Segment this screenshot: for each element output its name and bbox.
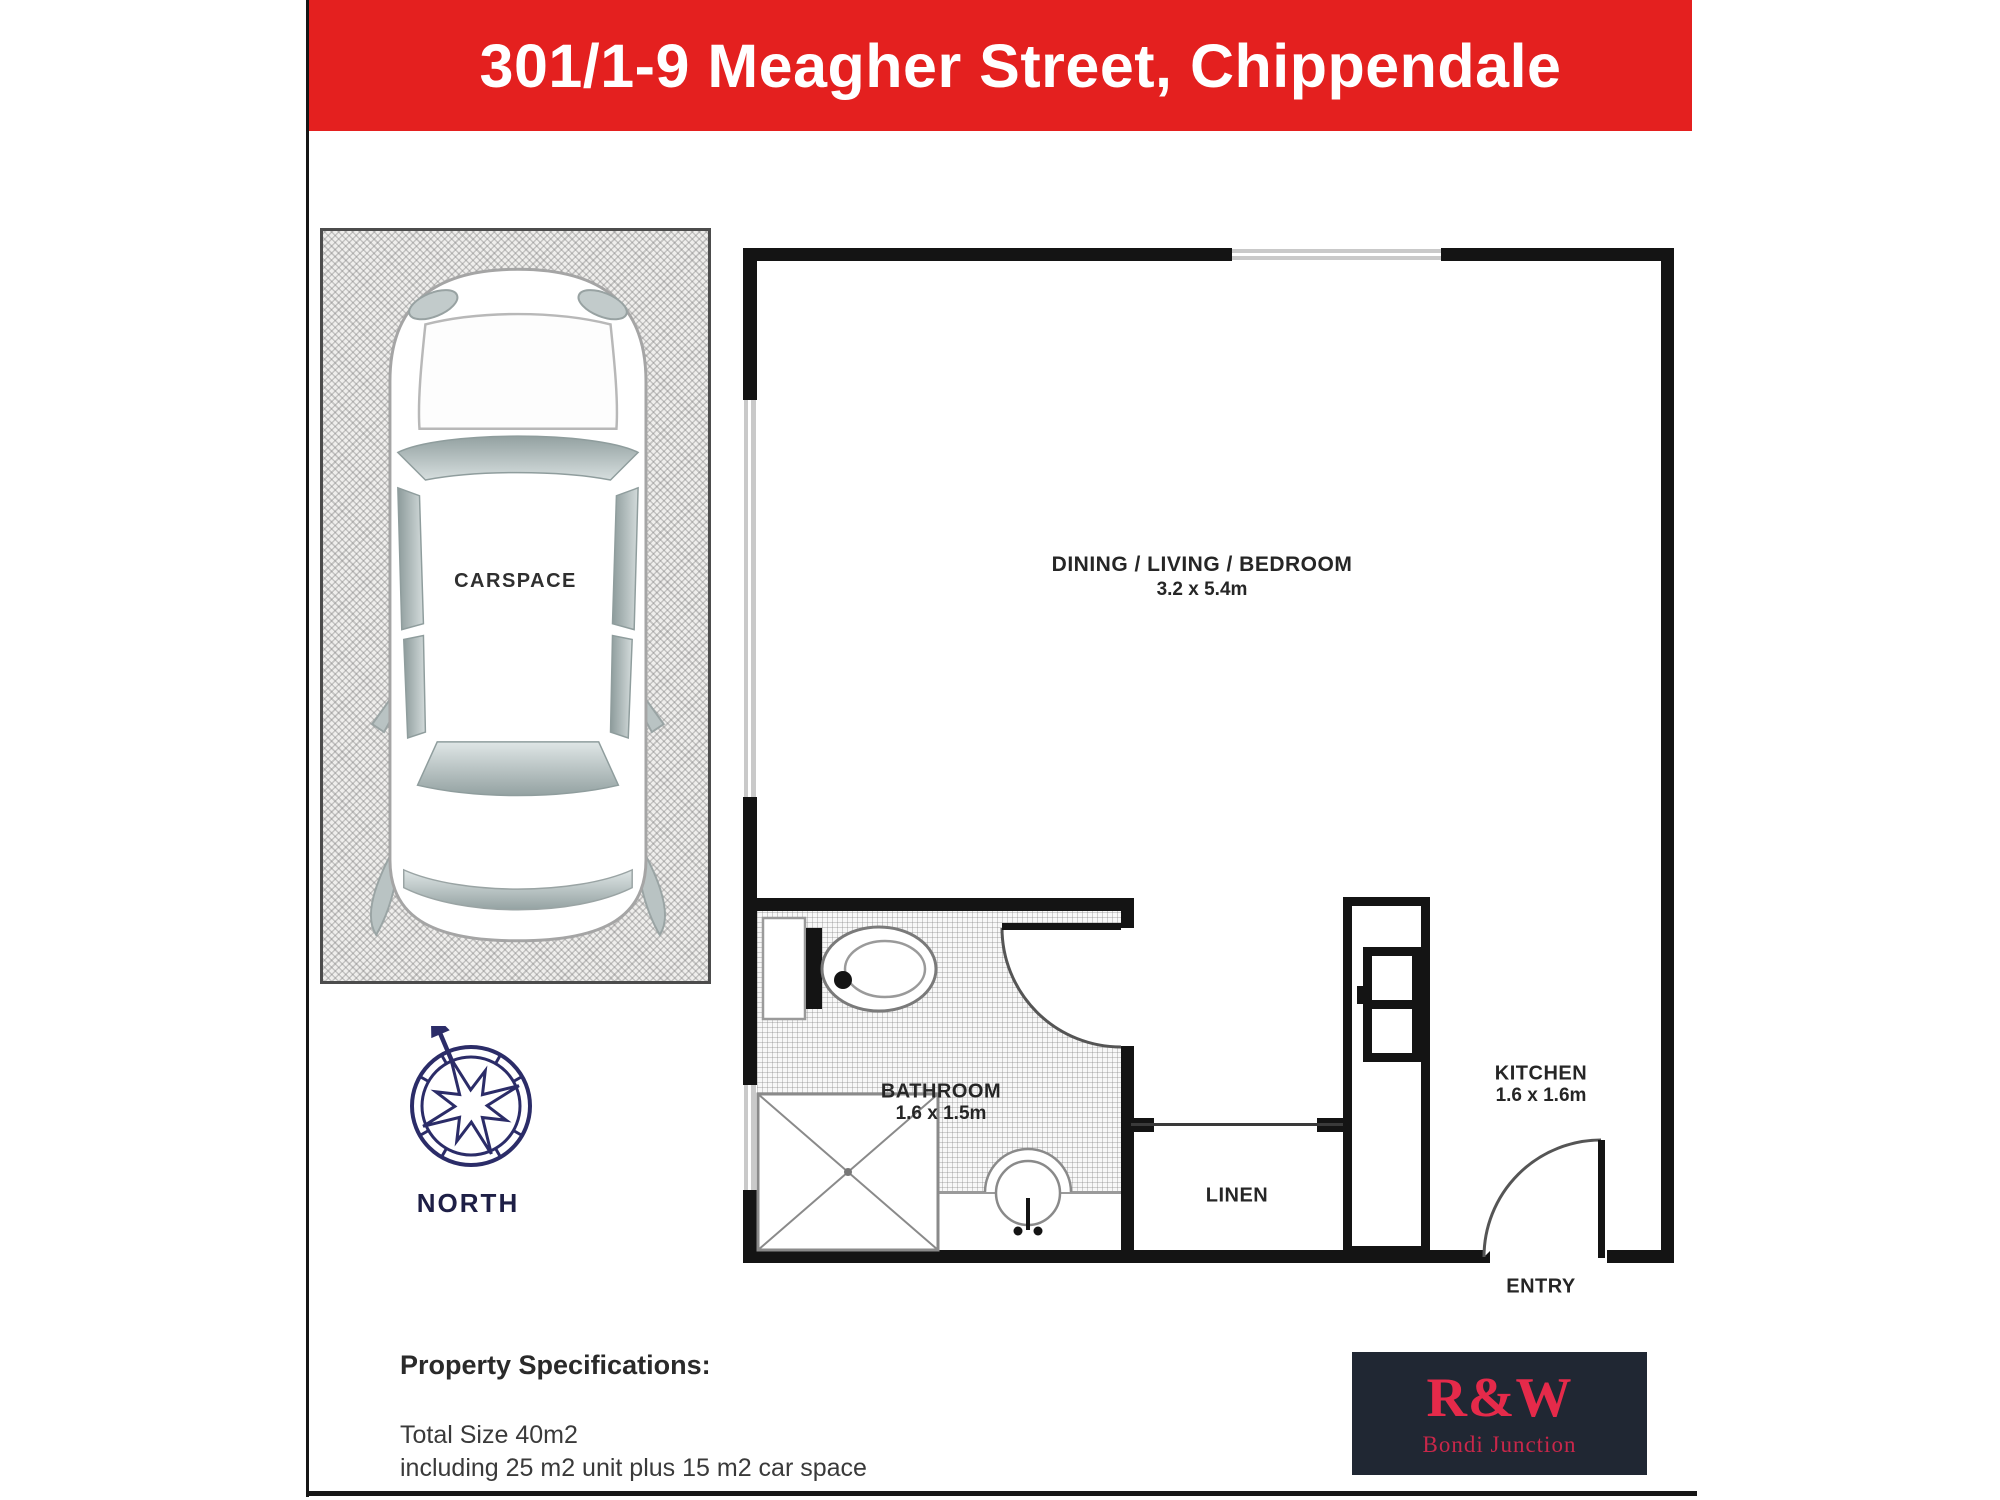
specs-heading: Property Specifications:	[400, 1350, 867, 1381]
windows	[744, 249, 1441, 1190]
specs-including: including 25 m2 unit plus 15 m2 car spac…	[400, 1452, 867, 1485]
wall-left-mid	[743, 797, 757, 898]
specs-total-size: Total Size 40m2	[400, 1419, 867, 1452]
appliance-hinge	[1357, 986, 1364, 1004]
label-linen: LINEN	[1206, 1185, 1269, 1208]
wall-right	[1661, 248, 1674, 1263]
logo-office: Bondi Junction	[1423, 1432, 1577, 1458]
wall-bathroom-right-stub	[1121, 898, 1134, 928]
logo-brand: R&W	[1426, 1370, 1572, 1426]
wall-bathroom-right	[1121, 1046, 1134, 1263]
entry-door	[1484, 1140, 1605, 1258]
entry-door-leaf	[1598, 1140, 1605, 1258]
agency-logo: R&W Bondi Junction	[1352, 1352, 1647, 1475]
floorplan-page: 301/1-9 Meagher Street, Chippendale	[0, 0, 2000, 1500]
toilet-flush-button	[834, 971, 852, 989]
label-kitchen-dims: 1.6 x 1.6m	[1496, 1085, 1587, 1107]
property-specifications: Property Specifications: Total Size 40m2…	[400, 1350, 867, 1485]
label-bathroom-dims: 1.6 x 1.5m	[896, 1103, 987, 1125]
bathroom-door	[1002, 923, 1121, 1047]
wall-top-left	[743, 248, 1232, 261]
wall-bathroom-top	[743, 898, 1134, 911]
label-living-dims: 3.2 x 5.4m	[1157, 579, 1248, 601]
kitchen-partition	[1343, 897, 1430, 1257]
label-kitchen-name: KITCHEN	[1495, 1063, 1587, 1086]
wall-left-lower	[743, 1190, 757, 1263]
linen-opening-line	[1131, 1123, 1343, 1126]
label-bathroom-name: BATHROOM	[881, 1081, 1001, 1104]
floor-plan	[0, 0, 2000, 1500]
label-living-name: DINING / LIVING / BEDROOM	[1052, 553, 1353, 577]
toilet-tank	[806, 928, 822, 1009]
bathroom-door-leaf	[1002, 923, 1121, 930]
wall-left-upper	[743, 248, 757, 400]
wall-left-bathroom	[743, 898, 757, 1085]
label-entry: ENTRY	[1506, 1276, 1576, 1299]
wall-top-right	[1441, 248, 1674, 261]
toilet-pedestal	[763, 918, 805, 1019]
basin	[985, 1149, 1071, 1236]
wall-bottom-right	[1607, 1250, 1674, 1263]
toilet	[763, 918, 936, 1019]
